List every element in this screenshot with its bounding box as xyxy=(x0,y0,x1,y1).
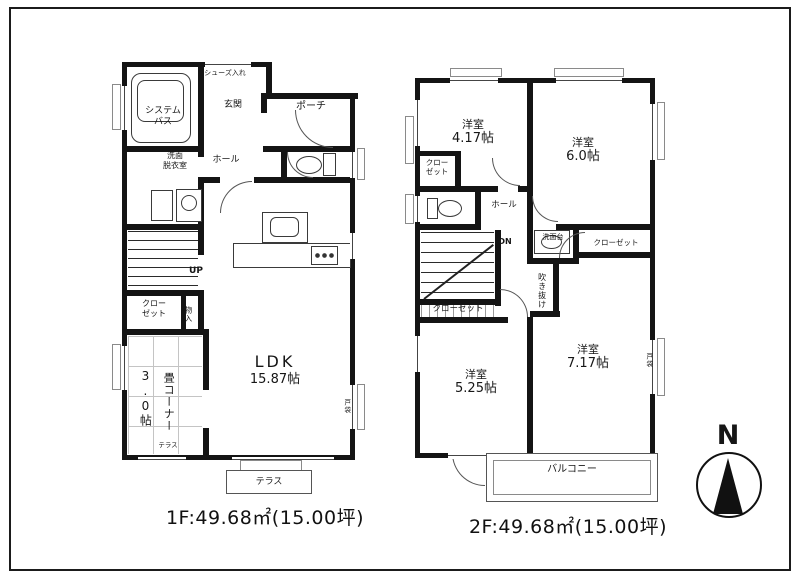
bedroom1-label: 洋室 4.17帖 xyxy=(438,118,508,147)
stove xyxy=(311,246,338,265)
wall xyxy=(527,83,533,230)
ldk-label: LDK xyxy=(238,352,312,371)
shutter-box xyxy=(357,148,365,180)
compass-north-label: N xyxy=(705,420,751,452)
bedroom2-top-window xyxy=(556,78,622,84)
porch-roof-recess xyxy=(266,57,358,93)
entrance-label: 玄関 xyxy=(212,100,254,111)
bedroom1-top-window xyxy=(450,78,498,84)
wall xyxy=(556,224,655,230)
shutter-label: 戸袋 xyxy=(342,392,350,420)
wall xyxy=(127,329,209,335)
closet-c-label: クローゼット xyxy=(580,238,652,247)
washroom-label: 洗面 脱衣室 xyxy=(152,151,198,170)
toilet-bowl xyxy=(438,200,462,217)
closet-a-label: クロー ゼット xyxy=(418,158,456,176)
eave-box xyxy=(112,84,121,130)
balcony-label: バルコニー xyxy=(535,464,609,476)
tatami-size-label: 3.0帖 xyxy=(138,362,152,434)
porch-label: ポーチ xyxy=(288,101,334,113)
wall xyxy=(254,177,355,183)
toilet-tank xyxy=(323,153,336,176)
wall xyxy=(420,151,455,156)
wall xyxy=(420,224,481,230)
stairs-down-label: DN xyxy=(494,237,516,247)
bath-label: システム バス xyxy=(135,106,191,128)
floor2-caption: 2F:49.68㎡(15.00坪) xyxy=(458,512,678,539)
wall xyxy=(203,428,209,460)
wall xyxy=(527,317,533,458)
wall xyxy=(127,290,204,296)
ldk-size-label: 15.87帖 xyxy=(238,372,312,388)
storage-label: 物入 xyxy=(184,299,193,329)
eave-box xyxy=(554,68,624,77)
wall xyxy=(204,177,220,183)
bedroom3-label: 洋室 5.25帖 xyxy=(440,368,512,397)
floor1-caption: 1F:49.68㎡(15.00坪) xyxy=(155,503,375,530)
wall xyxy=(553,258,559,312)
eave-box xyxy=(405,194,414,224)
eave-box xyxy=(450,68,502,77)
wall xyxy=(266,93,358,99)
closet-label: クロー ゼット xyxy=(130,299,178,318)
staircase-up xyxy=(128,231,198,289)
eave-box xyxy=(405,116,414,164)
floor-plan-page: シューズ入れ 玄関 ポーチ ホール システム バス 洗面 脱衣室 UP クロー … xyxy=(0,0,800,578)
toilet-window xyxy=(350,152,356,178)
kitchen-window xyxy=(350,233,356,259)
hall-label: ホール xyxy=(483,200,525,210)
shutter-box xyxy=(357,384,365,430)
wall xyxy=(203,335,209,390)
shutter-label: 戸袋 xyxy=(644,346,652,374)
toilet-tank xyxy=(427,198,438,219)
bedroom1-side-window xyxy=(415,100,421,146)
wall xyxy=(281,152,287,180)
shoe-box-label: シューズ入れ xyxy=(194,69,256,77)
kitchen-sink xyxy=(270,217,299,237)
shutter-box xyxy=(657,338,665,396)
washing-machine-drum xyxy=(181,195,197,211)
bedroom4-label: 洋室 7.17帖 xyxy=(552,343,624,372)
bedroom3-side-window xyxy=(415,336,421,372)
vanity-label: 洗面台 xyxy=(532,233,574,241)
stairs-up-label: UP xyxy=(184,266,208,277)
washbasin xyxy=(151,190,173,221)
void-label: 吹き抜け xyxy=(537,262,547,320)
bedroom2-label: 洋室 6.0帖 xyxy=(548,136,618,165)
wall xyxy=(420,317,508,323)
wall xyxy=(261,93,267,113)
bedroom2-side-window xyxy=(650,104,656,160)
toilet-window xyxy=(415,196,421,222)
wall xyxy=(127,224,204,230)
wall xyxy=(518,186,532,192)
hall-label: ホール xyxy=(205,155,247,166)
compass-needle-icon xyxy=(713,458,743,514)
shutter-box xyxy=(657,102,665,160)
entrance-door-window xyxy=(205,62,251,68)
bath-window xyxy=(122,86,128,130)
eave-box xyxy=(112,344,121,390)
tatami-window xyxy=(122,346,128,390)
closet-b-label: クローゼット xyxy=(420,304,496,314)
terrace-step-label: テラス xyxy=(150,442,186,450)
terrace-label: テラス xyxy=(248,477,290,488)
wall xyxy=(579,252,655,258)
